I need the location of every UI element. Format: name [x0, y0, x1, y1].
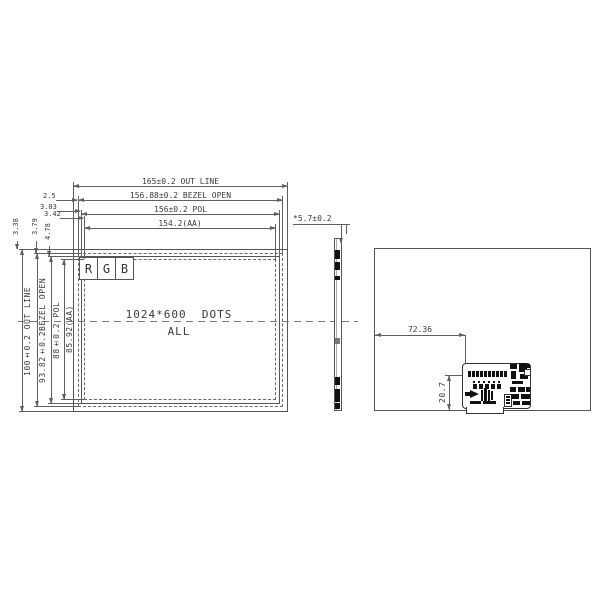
- offset-dim-4-78: 4.78: [44, 218, 54, 246]
- pcb-component: [521, 394, 530, 399]
- ext-line: [346, 224, 347, 234]
- dim-bezel-width: 156.88±0.2 BEZEL OPEN: [78, 191, 283, 200]
- side-view-block: [335, 377, 340, 385]
- dim-pol-width: 156±0.2 POL: [81, 205, 280, 214]
- rgb-pixel-cells: R G B: [79, 257, 134, 280]
- pcb-component: [510, 387, 516, 392]
- pcb-bar: [491, 391, 493, 400]
- dim-bezel-height: 93.82±0.2BEZEL OPEN: [38, 254, 48, 406]
- pcb-connector-pad: [480, 371, 483, 377]
- dim-pcb-offset-y: 20.7: [438, 378, 448, 406]
- offset-dim-3-42: 3.42: [44, 210, 61, 218]
- pcb-dot: [498, 381, 500, 383]
- pcb-connector-pad: [500, 371, 503, 377]
- ext-line: [19, 411, 73, 412]
- offset-dim-3-38: 3.38: [12, 213, 22, 241]
- pcb-connector-pad: [472, 371, 475, 377]
- ext-line: [282, 196, 283, 253]
- pcb-bar: [488, 390, 490, 401]
- pcb-dot: [473, 381, 475, 383]
- resolution-label: 1024*600 DOTS: [118, 309, 240, 321]
- pcb-dot: [488, 381, 490, 383]
- leader-arrow: [78, 216, 84, 220]
- dim-aa-width: 154.2(AA): [84, 219, 276, 228]
- pcb-component: [522, 401, 530, 405]
- pcb-connector-pad: [468, 371, 471, 377]
- pixel-cell-b: B: [115, 257, 134, 280]
- leader-arrow: [34, 248, 38, 254]
- pcb-connector-pad: [496, 371, 499, 377]
- dim-line: [375, 335, 465, 336]
- pcb-connector-pad: [476, 371, 479, 377]
- pcb-connector-pad: [504, 371, 507, 377]
- offset-dim-2-5: 2.5: [43, 192, 56, 200]
- pcb-component: [526, 387, 530, 392]
- dim-outline-height: 100±0.2 OUT LINE: [23, 252, 33, 410]
- dim-line: [84, 228, 276, 229]
- leader-arrow: [75, 209, 81, 213]
- pcb-component: [513, 401, 520, 405]
- ext-line: [73, 182, 74, 249]
- pcb-connector-pad: [488, 371, 491, 377]
- side-view-block: [335, 389, 340, 402]
- pcb-component: [510, 364, 517, 369]
- pcb-dot: [493, 381, 495, 383]
- side-view-block: [335, 276, 340, 280]
- pcb-component: [511, 394, 519, 399]
- ext-line: [34, 406, 78, 407]
- leader-arrow: [72, 198, 78, 202]
- pcb-component: [512, 381, 523, 384]
- pixel-cell-g: G: [97, 257, 116, 280]
- pcb-dot: [483, 381, 485, 383]
- dim-outline-width: 165±0.2 OUT LINE: [73, 177, 288, 186]
- pcb-connector-pad: [492, 371, 495, 377]
- dim-line: [81, 214, 280, 215]
- pcb-crystal-stripe: [506, 399, 510, 401]
- side-view-block: [335, 250, 340, 259]
- pcb-component: [518, 387, 525, 392]
- pcb-chip: [479, 384, 483, 389]
- pcb-label-strip: [483, 401, 496, 404]
- pixel-cell-r: R: [79, 257, 98, 280]
- side-view-block: [335, 403, 340, 409]
- pcb-component: [526, 364, 530, 368]
- pcb-bar: [481, 390, 483, 401]
- pcb-arrow-component: [470, 390, 479, 398]
- leader-arrow: [15, 244, 19, 250]
- pcb-crystal-stripe: [506, 402, 510, 404]
- dim-pcb-offset-x: 72.36: [375, 325, 465, 334]
- ext-line: [78, 196, 79, 253]
- offset-dim-3-79: 3.79: [31, 213, 41, 241]
- dim-aa-height: 85.92(AA): [65, 260, 75, 399]
- dim-pol-height: 88±0.2 POL: [52, 257, 62, 403]
- ext-line: [19, 249, 73, 250]
- pcb-outlined-component: [524, 369, 531, 376]
- side-view-block: [335, 338, 340, 344]
- ext-line: [465, 335, 466, 363]
- leader-arrow: [339, 238, 343, 244]
- pcb-chip: [497, 384, 501, 389]
- dim-thickness: *5.7±0.2: [293, 214, 332, 223]
- dim-line: [73, 186, 288, 187]
- pcb-chip: [473, 384, 477, 389]
- pcb-bottom-tab: [466, 407, 504, 414]
- dim-line: [78, 200, 283, 201]
- pcb-component: [511, 371, 516, 379]
- side-view-block: [335, 262, 340, 270]
- ext-line: [287, 182, 288, 249]
- pcb-connector-pad: [484, 371, 487, 377]
- pcb-chip: [491, 384, 495, 389]
- pcb-bar: [484, 388, 487, 402]
- lcd-module-drawing: R G B 1024*600 DOTS ALL 165±0.2 OUT LINE…: [0, 0, 600, 600]
- pcb-crystal-stripe: [506, 396, 510, 398]
- ext-line: [279, 210, 280, 256]
- leader-arrow: [47, 251, 51, 257]
- pcb-label-strip: [470, 401, 481, 404]
- resolution-sub-label: ALL: [118, 326, 240, 338]
- pcb-dot: [478, 381, 480, 383]
